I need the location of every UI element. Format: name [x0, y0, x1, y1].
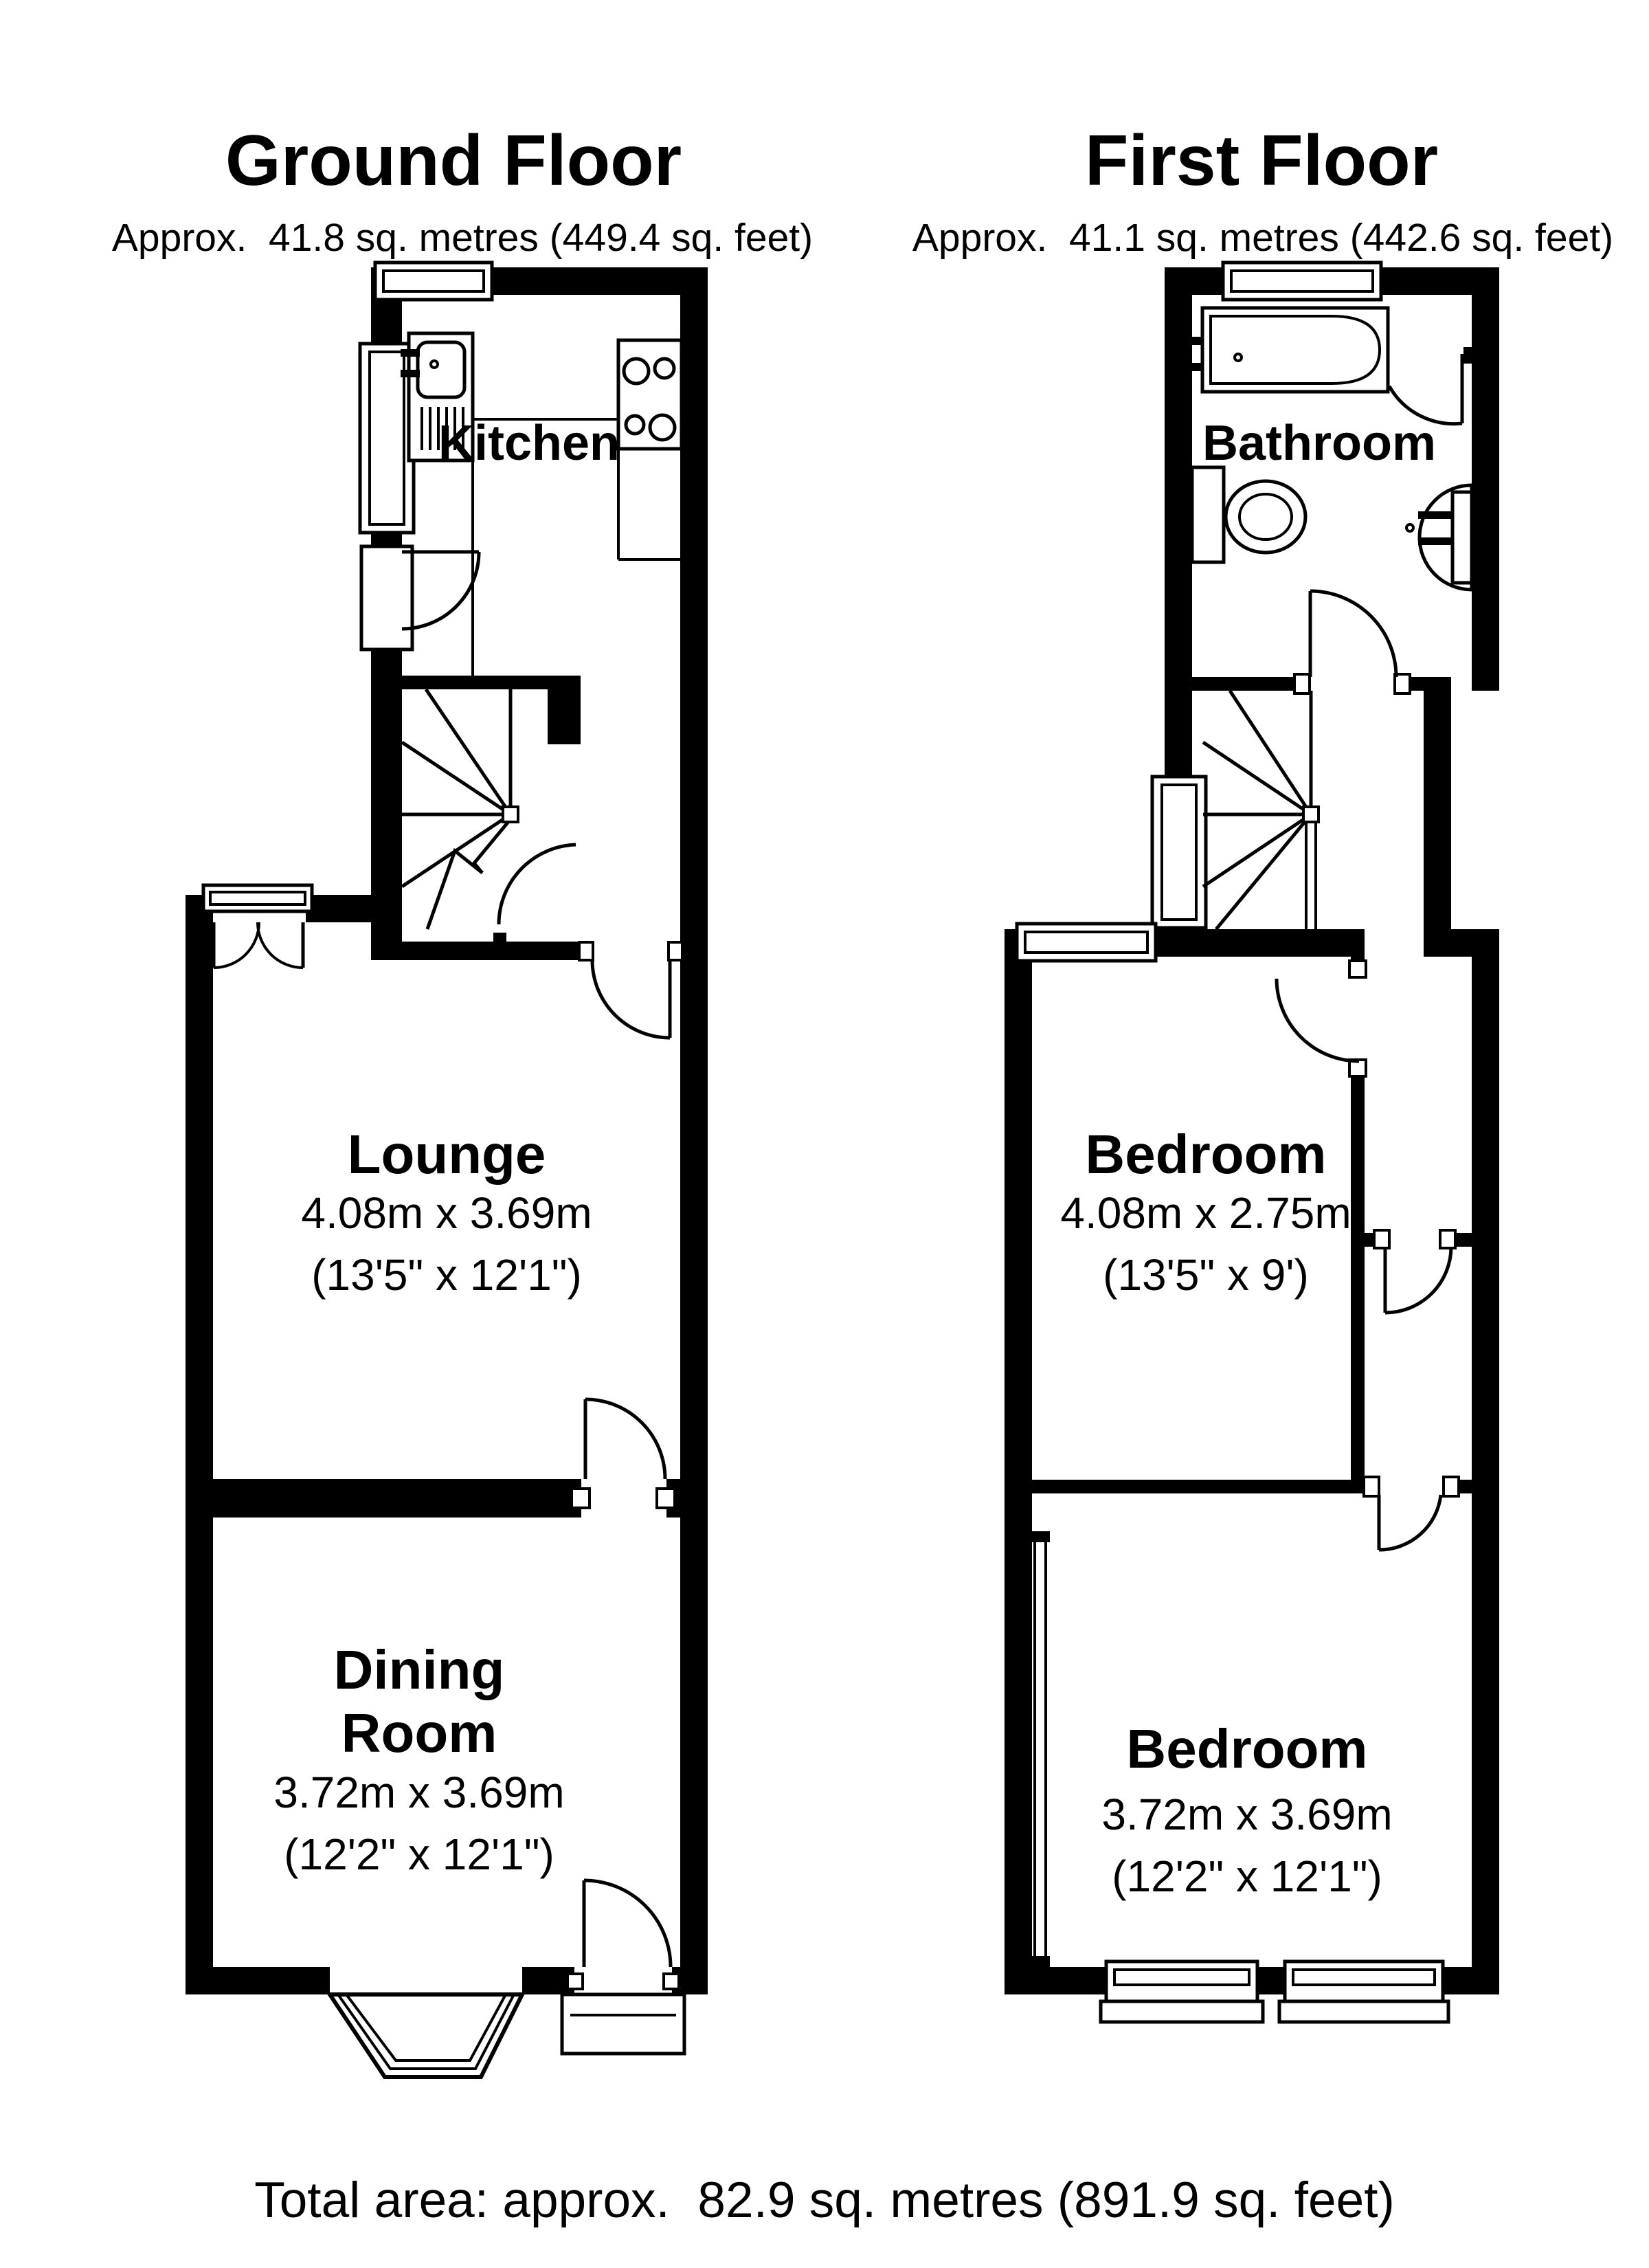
first-floor-title: First Floor [1085, 125, 1438, 197]
bathtub [1179, 308, 1388, 392]
kitchen-door [361, 546, 479, 649]
bedroom2-window-right [1279, 1961, 1448, 2022]
dining-door [572, 1399, 675, 1508]
stairs-first [1203, 691, 1319, 929]
bedroom1-window [1017, 924, 1156, 961]
bathroom-window [1223, 263, 1381, 300]
lounge-dims-metric: 4.08m x 3.69m [301, 1191, 592, 1235]
floorplan-page: Ground Floor Approx. 41.8 sq. metres (44… [0, 0, 1649, 2268]
lounge-door [579, 942, 682, 1038]
bay-window [330, 1994, 522, 2077]
bedroom2-window-left [1101, 1961, 1263, 2022]
bedroom1-dims-imperial: (13'5" x 9') [1103, 1253, 1309, 1297]
bedroom2-recess [1032, 1531, 1050, 1967]
floorplan-drawing [0, 0, 1649, 2268]
bedroom2-door [1364, 1477, 1459, 1550]
bedroom1-door [1277, 961, 1366, 1076]
lounge-label: Lounge [348, 1127, 546, 1182]
ground-floor-area: Approx. 41.8 sq. metres (449.4 sq. feet) [112, 219, 813, 258]
bedroom2-label: Bedroom [1126, 1722, 1367, 1777]
dining-label-line2: Room [341, 1706, 497, 1761]
total-area: Total area: approx. 82.9 sq. metres (891… [254, 2175, 1395, 2225]
dining-dims-imperial: (12'2" x 12'1") [284, 1832, 554, 1876]
cupboard-door [1389, 354, 1462, 424]
front-door [562, 1880, 684, 2054]
basin [1406, 485, 1472, 590]
dining-dims-metric: 3.72m x 3.69m [273, 1770, 564, 1814]
landing-door [1374, 1230, 1455, 1313]
landing-window [1152, 777, 1206, 928]
lounge-dims-imperial: (13'5" x 12'1") [311, 1253, 582, 1297]
kitchen-label: Kitchen [438, 419, 620, 468]
bedroom2-dims-imperial: (12'2" x 12'1") [1112, 1854, 1382, 1898]
bedroom2-dims-metric: 3.72m x 3.69m [1101, 1792, 1392, 1836]
lounge-french-doors [203, 885, 312, 968]
bedroom1-label: Bedroom [1085, 1127, 1326, 1182]
dining-label-line1: Dining [334, 1643, 505, 1698]
toilet [1192, 467, 1305, 562]
kitchen-top-window [375, 263, 492, 300]
bedroom1-dims-metric: 4.08m x 2.75m [1060, 1191, 1351, 1235]
bathroom-door [1294, 591, 1410, 693]
bathroom-label: Bathroom [1202, 419, 1436, 468]
first-floor-area: Approx. 41.1 sq. metres (442.6 sq. feet) [912, 219, 1613, 258]
kitchen-hob [618, 340, 682, 449]
ground-floor-title: Ground Floor [225, 125, 682, 197]
